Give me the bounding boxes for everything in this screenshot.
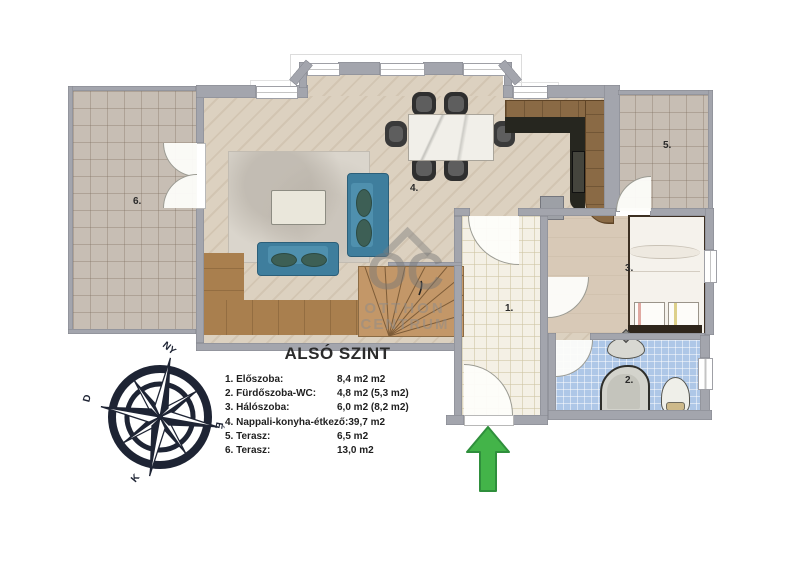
shower-tray xyxy=(607,374,640,409)
legend-item-value: 6,5 m2 xyxy=(337,430,368,444)
chair-seat xyxy=(448,96,464,112)
wall-segment xyxy=(705,281,714,335)
chair-seat xyxy=(416,96,432,112)
wall-segment xyxy=(196,207,204,343)
wall-segment xyxy=(512,415,548,425)
bed xyxy=(628,215,706,337)
wall-segment xyxy=(604,85,620,212)
chair-seat xyxy=(389,126,403,142)
wall-segment xyxy=(618,90,712,95)
window xyxy=(704,250,717,283)
window xyxy=(380,63,425,76)
legend-item: 5. Terasz: 6,5 m2 xyxy=(225,430,450,444)
wall-segment xyxy=(423,62,463,75)
room-label-terrace5: 5. xyxy=(663,140,671,151)
wall-segment xyxy=(590,333,705,340)
stair-wall xyxy=(388,262,462,266)
kitchen-worktop-dark-right xyxy=(570,133,585,210)
wall-segment xyxy=(548,333,556,415)
legend-item: 2. Fürdőszoba-WC: 4,8 m2 (5,3 m2) xyxy=(225,387,450,401)
dining-chair xyxy=(444,92,468,116)
window xyxy=(256,86,298,99)
wall-segment xyxy=(68,86,196,91)
room-label-terrace6: 6. xyxy=(133,196,141,207)
wall-segment xyxy=(547,85,607,98)
compass-north-label: É xyxy=(212,421,224,429)
kitchen-worktop-dark xyxy=(505,117,585,133)
entrance-threshold xyxy=(464,415,514,426)
legend-title: ALSÓ SZINT xyxy=(225,344,450,364)
wall-segment xyxy=(700,335,710,358)
stair-treads xyxy=(359,267,463,336)
legend: ALSÓ SZINT 1. Előszoba: 8,4 m2 m2 2. Für… xyxy=(225,344,450,458)
coffee-table xyxy=(271,190,326,225)
legend-item-value: 8,4 m2 m2 xyxy=(337,373,385,387)
chair-seat xyxy=(448,160,464,176)
wall-segment xyxy=(454,208,470,216)
legend-item-label: 3. Hálószoba: xyxy=(225,401,337,415)
entrance-arrow-icon xyxy=(466,426,510,492)
duvet-fold xyxy=(630,245,700,259)
legend-item-value: 13,0 m2 xyxy=(337,444,374,458)
wall-segment xyxy=(518,208,616,216)
room-label-living: 4. xyxy=(410,183,418,194)
oven xyxy=(572,151,585,193)
legend-item-value: 39,7 m2 xyxy=(348,416,385,430)
legend-item: 4. Nappali-konyha-étkező: 39,7 m2 xyxy=(225,416,450,430)
legend-item: 6. Terasz: 13,0 m2 xyxy=(225,444,450,458)
wall-segment xyxy=(338,62,380,75)
sofa-cushion xyxy=(301,253,327,267)
room-label-bedroom: 3. xyxy=(625,263,633,274)
compass-rose: NY É K D xyxy=(92,340,232,490)
window xyxy=(513,86,549,99)
legend-item-label: 1. Előszoba: xyxy=(225,373,337,387)
wall-segment xyxy=(503,85,513,98)
door-threshold xyxy=(196,143,206,209)
window xyxy=(698,358,713,390)
loveseat-cushion xyxy=(356,219,372,247)
dining-chair xyxy=(385,121,407,147)
headboard xyxy=(628,325,702,333)
bay-floor xyxy=(307,74,503,96)
wall-segment xyxy=(705,208,714,250)
legend-item: 3. Hálószoba: 6,0 m2 (8,2 m2) xyxy=(225,401,450,415)
loveseat-cushion xyxy=(356,189,372,217)
room-label-hall: 1. xyxy=(505,303,513,314)
legend-item-label: 4. Nappali-konyha-étkező: xyxy=(225,416,348,430)
legend-item-label: 2. Fürdőszoba-WC: xyxy=(225,387,337,401)
wall-segment xyxy=(540,216,548,420)
wall-segment xyxy=(548,410,712,420)
wall-segment xyxy=(68,86,73,334)
handrail-mark xyxy=(419,281,422,295)
wall-segment xyxy=(454,216,462,425)
legend-item-label: 5. Terasz: xyxy=(225,430,337,444)
legend-item-value: 4,8 m2 (5,3 m2) xyxy=(337,387,409,401)
dining-table xyxy=(408,114,494,161)
wall-segment xyxy=(708,90,713,211)
legend-item: 1. Előszoba: 8,4 m2 m2 xyxy=(225,373,450,387)
legend-item-value: 6,0 m2 (8,2 m2) xyxy=(337,401,409,415)
duvet-fold xyxy=(630,265,700,272)
floor-plan: 1. 2. 3. 4. 5. 6. OC OTTHON CENTRUM xyxy=(0,0,800,570)
legend-item-label: 6. Terasz: xyxy=(225,444,337,458)
sofa-cushion xyxy=(271,253,297,267)
compass-star xyxy=(98,355,222,479)
loveseat xyxy=(347,173,389,257)
room-label-bath: 2. xyxy=(625,375,633,386)
staircase xyxy=(358,266,464,337)
wall-segment xyxy=(650,208,712,216)
dining-chair xyxy=(412,92,436,116)
terrace6-floor xyxy=(73,91,196,329)
chair-seat xyxy=(416,160,432,176)
sofa xyxy=(257,242,339,276)
wall-segment xyxy=(196,85,256,98)
shower xyxy=(600,365,650,415)
compass-south-label: D xyxy=(81,394,93,404)
wall-segment xyxy=(68,329,196,334)
sideboard-horizontal xyxy=(200,300,360,335)
